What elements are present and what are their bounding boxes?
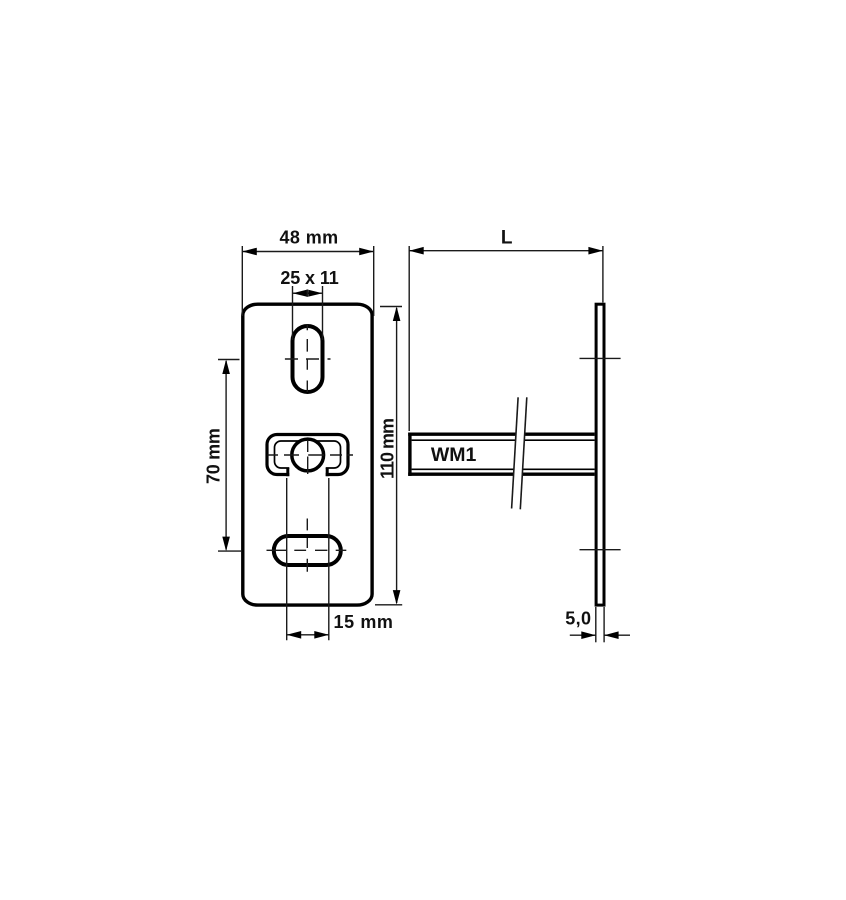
svg-text:WM1: WM1	[431, 444, 477, 466]
svg-text:48 mm: 48 mm	[280, 228, 339, 248]
svg-text:110 mm: 110 mm	[378, 419, 398, 479]
svg-text:15 mm: 15 mm	[334, 612, 394, 632]
svg-text:L: L	[501, 228, 513, 249]
svg-text:25 x 11: 25 x 11	[280, 268, 338, 288]
svg-text:5,0: 5,0	[565, 609, 591, 629]
svg-text:70 mm: 70 mm	[204, 428, 224, 484]
